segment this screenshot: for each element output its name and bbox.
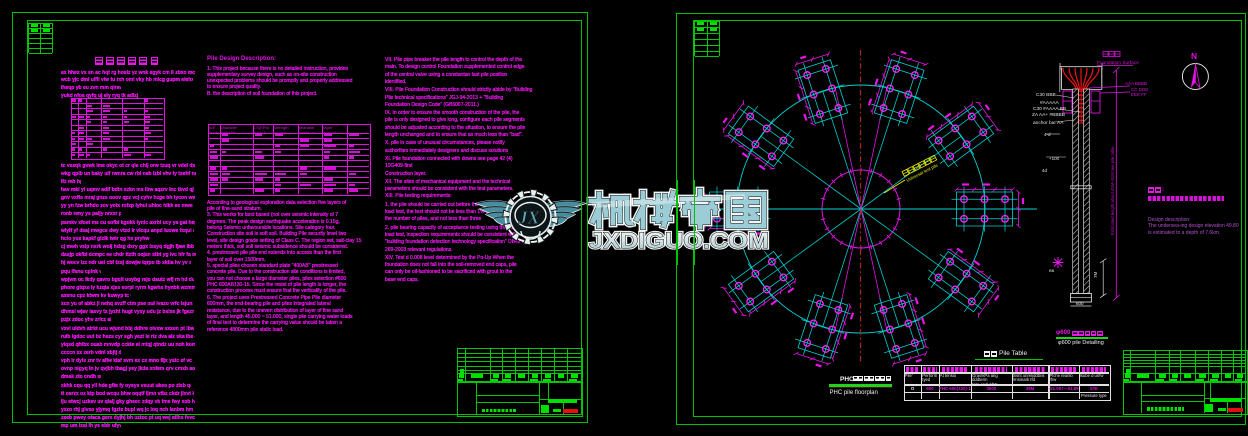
svg-text:7M: 7M <box>1093 271 1098 278</box>
svg-text:4d: 4d <box>1042 168 1048 173</box>
svg-text:JXDIGUO.COM: JXDIGUO.COM <box>589 228 769 253</box>
svg-text:AAA BBBB: AAA BBBB <box>1125 81 1147 86</box>
svg-text:N: N <box>1191 51 1197 61</box>
svg-text:JX: JX <box>518 208 541 228</box>
svg-text:#AAAAA: #AAAAA <box>1040 100 1059 106</box>
svg-text:BB: BB <box>1049 268 1055 273</box>
svg-text:Estimated length about 45M~51M: Estimated length about 45M~51M see pile … <box>1110 146 1115 235</box>
svg-text:C30 BBB: C30 BBB <box>1036 92 1056 98</box>
svg-text:C30 #AAAA BB: C30 #AAAA BB <box>1033 106 1066 112</box>
svg-text:4-d: 4-d <box>1044 132 1051 137</box>
svg-text:EEE FF: EEE FF <box>1131 92 1147 97</box>
svg-text:ZA AA+ #BBBB: ZA AA+ #BBBB <box>1032 112 1065 118</box>
svg-text:anchor bar AA: anchor bar AA <box>1033 120 1064 126</box>
svg-text:Foundation Surface: Foundation Surface <box>1097 60 1139 66</box>
svg-text:600: 600 <box>1076 301 1084 306</box>
